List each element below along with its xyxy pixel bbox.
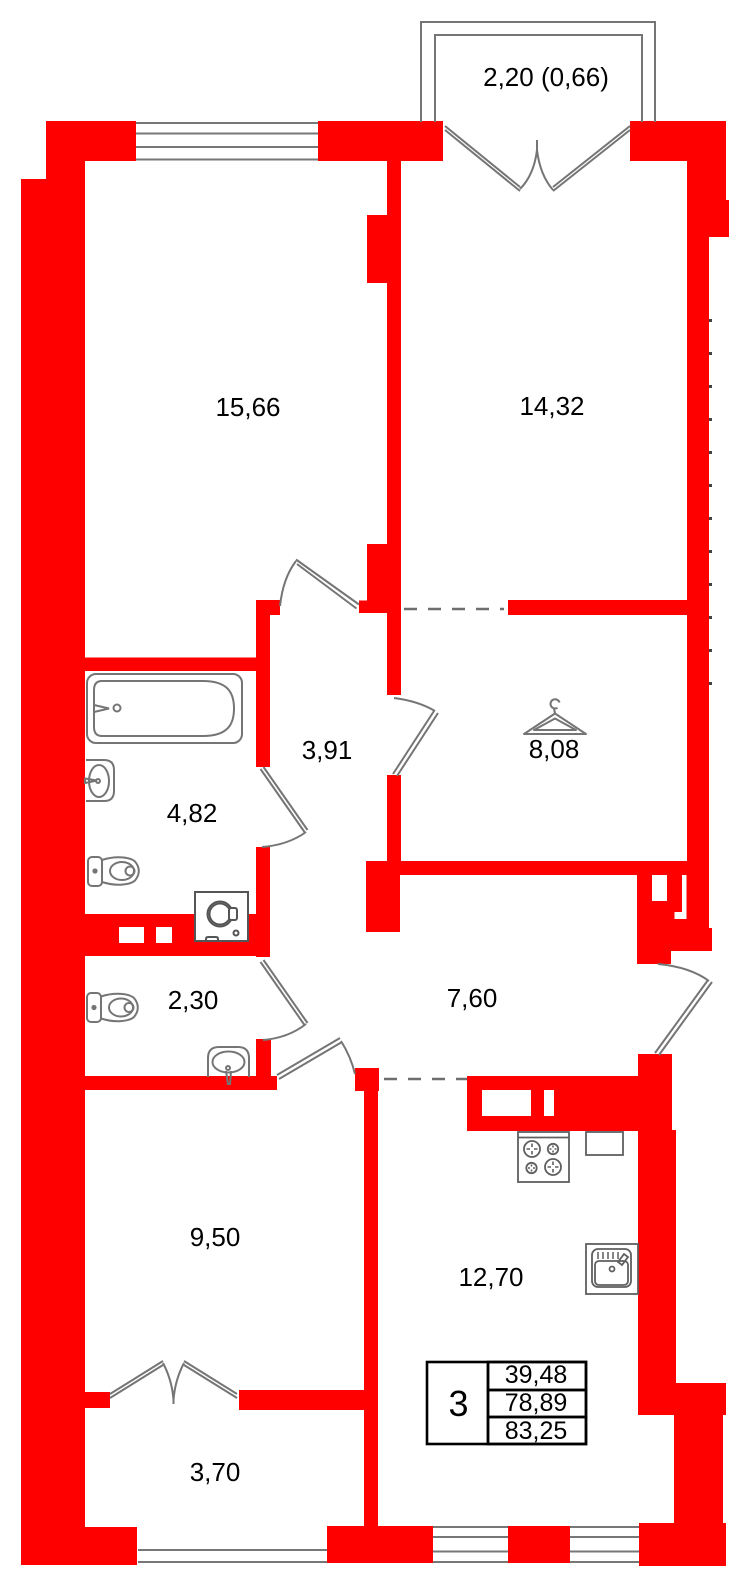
svg-text:8,08: 8,08 <box>529 734 580 764</box>
svg-text:15,66: 15,66 <box>215 392 280 422</box>
svg-text:78,89: 78,89 <box>505 1389 568 1417</box>
svg-text:39,48: 39,48 <box>505 1361 568 1389</box>
svg-text:14,32: 14,32 <box>519 391 584 421</box>
svg-text:3,91: 3,91 <box>302 735 353 765</box>
svg-text:83,25: 83,25 <box>505 1417 568 1445</box>
svg-text:9,50: 9,50 <box>190 1222 241 1252</box>
svg-text:3,70: 3,70 <box>190 1457 241 1487</box>
svg-text:2,30: 2,30 <box>168 985 219 1015</box>
svg-text:3: 3 <box>448 1383 468 1424</box>
svg-text:12,70: 12,70 <box>458 1262 523 1292</box>
svg-text:4,82: 4,82 <box>167 798 218 828</box>
svg-text:7,60: 7,60 <box>447 983 498 1013</box>
svg-text:2,20 (0,66): 2,20 (0,66) <box>483 62 609 92</box>
